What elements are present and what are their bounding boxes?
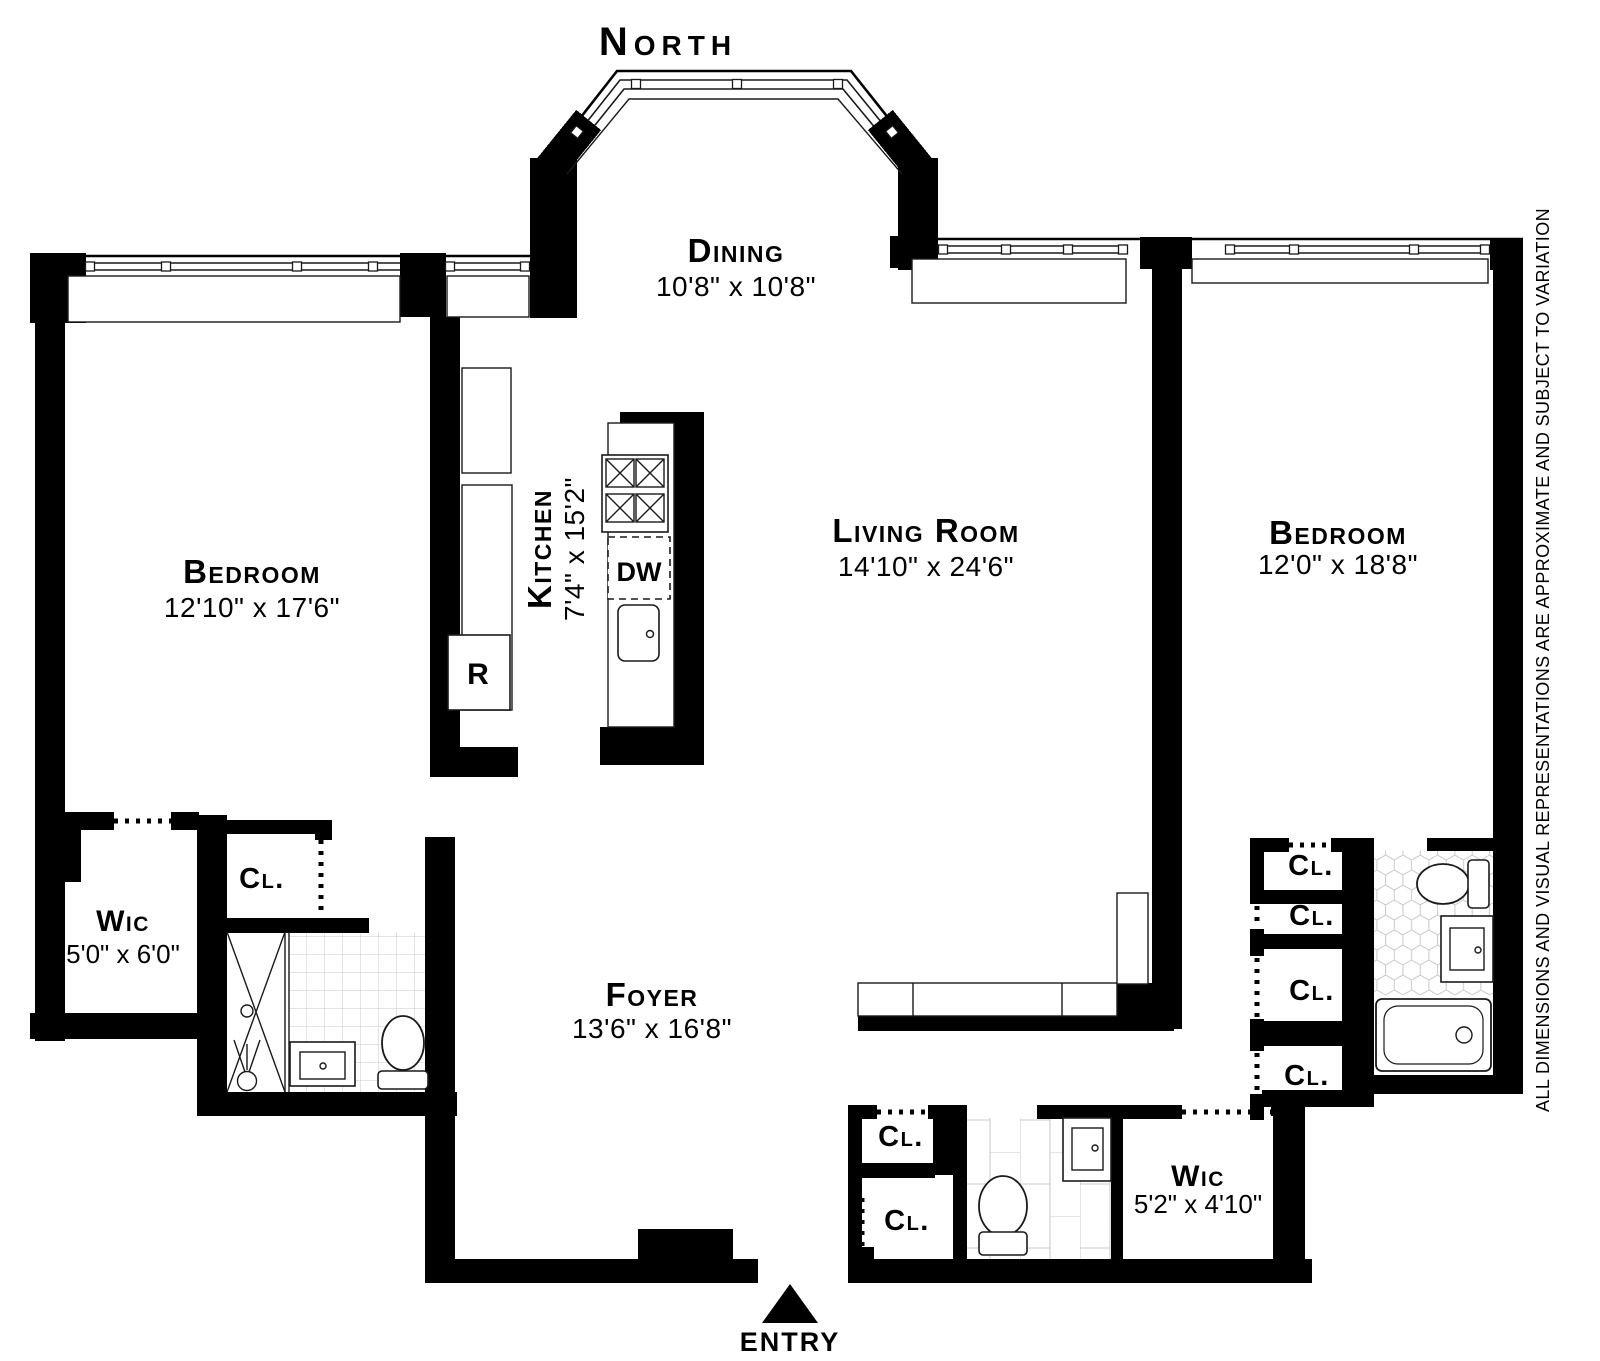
window-mullion xyxy=(733,80,742,89)
wall xyxy=(30,1013,212,1039)
wall xyxy=(400,253,446,317)
bathroom-sink xyxy=(1063,1118,1111,1181)
disclaimer-text: ALL DIMENSIONS AND VISUAL REPRESENTATION… xyxy=(1533,208,1553,1112)
bedroom-right-label: Bedroom xyxy=(1269,514,1407,551)
living-room-label: Living Room xyxy=(832,512,1019,549)
window-mullion xyxy=(1410,245,1419,254)
floor-plan-canvas: ENTRY North Dining 10'8" x 10'8" Bedroom… xyxy=(0,0,1600,1361)
window-mullion xyxy=(1064,245,1073,254)
window-mullion xyxy=(162,262,171,271)
wall xyxy=(1111,1118,1123,1265)
window-mullion xyxy=(1002,245,1011,254)
wall xyxy=(674,412,704,729)
wall xyxy=(600,727,704,765)
stove xyxy=(602,455,668,532)
window-mullion xyxy=(293,262,302,271)
window-mullion xyxy=(86,262,95,271)
wall xyxy=(1427,838,1522,851)
window-mullion xyxy=(834,80,843,89)
window-mullion xyxy=(369,262,378,271)
wall xyxy=(1152,237,1182,1029)
bathtub-outline xyxy=(1376,999,1491,1071)
wall xyxy=(171,812,199,830)
kitchen-sink xyxy=(618,605,659,661)
window-mullion xyxy=(521,262,530,271)
kitchen-cabinet xyxy=(462,368,511,473)
sink-counter xyxy=(1441,916,1493,982)
toilet-tank xyxy=(1468,860,1489,908)
wall xyxy=(953,1108,967,1265)
bench-horizontal xyxy=(858,983,1117,1016)
toilet-bowl xyxy=(979,1176,1027,1236)
closet-label: Cl. xyxy=(1289,900,1335,932)
window-sill xyxy=(447,276,529,317)
toilet-tank xyxy=(378,1071,428,1089)
foyer-label: Foyer xyxy=(606,976,699,1013)
kitchen-label: Kitchen xyxy=(521,489,558,609)
closet-label: Cl. xyxy=(878,1121,924,1153)
wall xyxy=(1250,1019,1264,1051)
wall xyxy=(227,918,369,933)
wall xyxy=(1273,1100,1305,1283)
compass-north-label: North xyxy=(599,20,737,64)
entry-label: ENTRY xyxy=(740,1327,841,1357)
window-mullion xyxy=(939,245,948,254)
toilet-bowl xyxy=(1417,864,1469,904)
wall xyxy=(40,812,114,830)
toilet xyxy=(979,1176,1027,1255)
window-mullion xyxy=(1290,245,1299,254)
wic-left-label: Wic xyxy=(96,905,150,938)
toilet xyxy=(1417,860,1489,908)
toilet xyxy=(378,1016,428,1089)
shower-drain xyxy=(241,1005,253,1017)
window-sill xyxy=(912,259,1126,303)
foyer-dims: 13'6" x 16'8" xyxy=(572,1013,732,1044)
window-mullion xyxy=(1481,245,1490,254)
wall xyxy=(1250,1094,1264,1120)
window-sill xyxy=(1192,259,1488,283)
bathtub xyxy=(1376,999,1491,1071)
window-kitchen xyxy=(446,262,531,317)
window-mullion xyxy=(632,80,641,89)
shower-head xyxy=(238,1072,257,1091)
closet-label: Cl. xyxy=(1288,850,1334,882)
wall xyxy=(1342,838,1374,1092)
closet-label: Cl. xyxy=(1284,1060,1330,1092)
dining-dims: 10'8" x 10'8" xyxy=(656,271,816,302)
toilet-bowl xyxy=(382,1016,424,1070)
bedroom-left-dims: 12'10" x 17'6" xyxy=(164,592,340,623)
refrigerator-label: R xyxy=(467,658,489,691)
living-room-dims: 14'10" x 24'6" xyxy=(838,551,1014,582)
wic-right-dims: 5'2" x 4'10" xyxy=(1134,1189,1262,1219)
wall xyxy=(1250,929,1264,956)
toilet-tank xyxy=(979,1232,1027,1255)
wall xyxy=(438,1259,758,1283)
dishwasher-label: DW xyxy=(617,557,662,587)
wall xyxy=(1037,1105,1182,1119)
wic-left-dims: 5'0" x 6'0" xyxy=(66,939,180,969)
wall xyxy=(1493,238,1523,1094)
closet-label: Cl. xyxy=(1289,975,1335,1007)
wall xyxy=(35,253,65,1041)
closet-label: Cl. xyxy=(239,863,285,895)
wall xyxy=(430,747,518,777)
wall xyxy=(425,837,455,1283)
wall xyxy=(1117,983,1174,1029)
window-mullion xyxy=(1226,245,1235,254)
wall xyxy=(848,1259,1312,1283)
window-mullion xyxy=(1119,245,1128,254)
wall xyxy=(848,1105,862,1265)
wall xyxy=(197,815,227,1095)
bench-vertical xyxy=(1117,893,1148,984)
wall xyxy=(1250,838,1289,852)
kitchen-dims: 7'4" x 15'2" xyxy=(559,477,590,621)
bathroom-sink xyxy=(1441,916,1493,982)
background xyxy=(0,0,1600,1361)
bedroom-right-dims: 12'0" x 18'8" xyxy=(1258,549,1418,580)
wall xyxy=(638,1229,733,1259)
floor-plan-page: ENTRY North Dining 10'8" x 10'8" Bedroom… xyxy=(0,0,1600,1361)
dining-label: Dining xyxy=(688,232,785,269)
bathroom-sink xyxy=(290,1042,355,1086)
bedroom-left-label: Bedroom xyxy=(183,553,321,590)
window-mullion xyxy=(446,262,455,271)
closet-label: Cl. xyxy=(884,1205,930,1237)
wall xyxy=(1342,1075,1522,1094)
wall xyxy=(315,820,332,840)
wall xyxy=(197,1092,457,1116)
window-sill xyxy=(68,276,400,322)
